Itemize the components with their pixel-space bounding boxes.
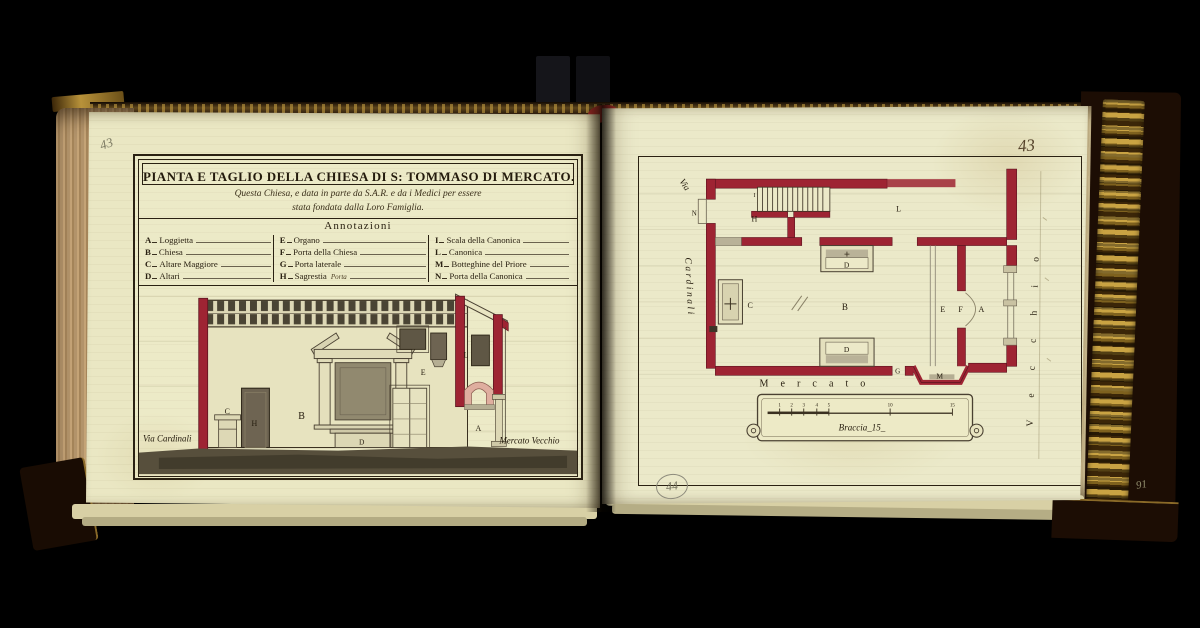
street-label-cardinali: Cardinali xyxy=(682,257,696,317)
legend-label: Loggietta xyxy=(159,235,193,245)
legend-key: A xyxy=(145,235,151,245)
plan-svg: 1 2 3 4 5 10 15 Braccia_15_ N I H L C B … xyxy=(639,157,1081,485)
legend-key: B xyxy=(145,247,151,257)
legend-item: MBotteghine del Priore xyxy=(435,259,571,270)
legend-column-3: IScala della Canonica LCanonica MBottegh… xyxy=(428,235,571,282)
edge-pencil-number: 91 xyxy=(1135,478,1148,492)
book-cover-right xyxy=(1075,91,1181,536)
legend-item: ALoggietta xyxy=(145,235,273,246)
margin-marks xyxy=(1043,217,1051,361)
legend-item: LCanonica xyxy=(435,247,571,258)
book-gutter xyxy=(586,104,616,512)
section-label-d: D xyxy=(359,437,365,446)
legend-label: Chiesa xyxy=(159,247,183,257)
cover-bottom-right-edge xyxy=(1051,498,1178,542)
left-pencil-folio-number: 43 xyxy=(98,134,115,153)
plan-label-l: L xyxy=(896,204,901,213)
legend-label: Altare Maggiore xyxy=(159,259,217,269)
legend-key: L xyxy=(435,247,441,257)
scale-tick: 15 xyxy=(950,404,956,409)
subtitle-line-2: stata fondata dalla Loro Famiglia. xyxy=(139,202,577,216)
plate-subtitle: Questa Chiesa, e data in parte da S.A.R.… xyxy=(139,185,577,219)
subtitle-line-1: Questa Chiesa, e data in parte da S.A.R.… xyxy=(139,188,577,202)
legend: Annotazioni ALoggietta BChiesa CAltare M… xyxy=(139,219,577,286)
plan-label-e: E xyxy=(940,305,945,314)
plan-label-d-upper: D xyxy=(844,261,850,270)
scale-cartouche: 1 2 3 4 5 10 15 Braccia_15_ xyxy=(747,394,983,440)
section-label-l: L xyxy=(464,350,469,359)
legend-item: NPorta della Canonica xyxy=(435,271,571,282)
legend-note: Porta xyxy=(331,273,347,281)
legend-label: Organo xyxy=(294,235,320,245)
legend-label: Canonica xyxy=(449,247,482,257)
legend-label: Scala della Canonica xyxy=(446,235,520,245)
legend-key: N xyxy=(435,271,441,281)
legend-heading: Annotazioni xyxy=(145,220,571,235)
street-label-mercato-vecchio: Mercato Vecchio xyxy=(498,435,560,445)
section-organ-e xyxy=(431,333,447,367)
plan-label-h: H xyxy=(752,214,758,223)
legend-label: Porta laterale xyxy=(295,259,342,269)
section-label-c: C xyxy=(225,407,230,416)
plan-label-n: N xyxy=(692,209,697,217)
street-label-via-cardinali: Via Cardinali xyxy=(143,433,192,443)
left-page: 43 PIANTA E TAGLIO DELLA CHIESA DI S: TO… xyxy=(86,112,600,508)
legend-column-2: EOrgano FPorta della Chiesa GPorta later… xyxy=(273,235,428,282)
legend-key: M xyxy=(435,259,443,269)
scale-tick: 10 xyxy=(888,404,894,409)
legend-key: I xyxy=(435,235,438,245)
legend-label: Botteghine del Priore xyxy=(451,259,526,269)
plan-hatch-marks xyxy=(792,296,808,311)
legend-item: EOrgano xyxy=(280,235,428,246)
plan-door-n xyxy=(698,199,706,223)
legend-key: D xyxy=(145,271,151,281)
legend-key: H xyxy=(280,271,287,281)
plan-label-m: M xyxy=(936,371,943,380)
plan-stairs xyxy=(758,187,830,211)
right-page: 43 xyxy=(602,106,1088,504)
legend-item: DAltari xyxy=(145,271,273,282)
legend-item: GPorta laterale xyxy=(280,259,428,270)
street-label-mercato: Mercato xyxy=(760,378,878,389)
section-drawing: C H B D E L A Via Cardinali Mercato Vecc… xyxy=(139,286,577,476)
section-label-a: A xyxy=(475,424,481,433)
plate-title: PIANTA E TAGLIO DELLA CHIESA DI S: TOMMA… xyxy=(142,163,574,185)
right-ink-page-number: 43 xyxy=(1017,135,1036,156)
plan-label-a: A xyxy=(979,305,985,314)
legend-item: BChiesa xyxy=(145,247,273,258)
legend-key: C xyxy=(145,259,151,269)
section-label-e: E xyxy=(421,368,426,377)
section-altar-c xyxy=(215,415,241,448)
legend-key: F xyxy=(280,247,285,257)
legend-label: Porta della Chiesa xyxy=(293,247,357,257)
plan-colonnade xyxy=(1004,266,1017,345)
plan-label-g: G xyxy=(895,367,900,375)
section-label-b: B xyxy=(298,411,305,422)
legend-key: G xyxy=(280,259,287,269)
plan-pencil-walls xyxy=(930,246,935,367)
section-svg: C H B D E L A Via Cardinali Mercato Vecc… xyxy=(139,286,577,476)
plan-sill xyxy=(715,237,741,245)
section-label-h: H xyxy=(251,419,257,428)
plan-door-f-swing xyxy=(965,293,975,326)
scale-label: Braccia_15_ xyxy=(839,423,886,433)
legend-item: FPorta della Chiesa xyxy=(280,247,428,258)
plate-frame-right: 1 2 3 4 5 10 15 Braccia_15_ N I H L C B … xyxy=(638,156,1082,486)
legend-item: IScala della Canonica xyxy=(435,235,571,246)
section-window xyxy=(397,326,429,353)
section-cut-wall-left xyxy=(199,298,208,449)
legend-label: Porta della Canonica xyxy=(449,271,522,281)
stamp-value: 44 xyxy=(665,478,679,495)
legend-column-1: ALoggietta BChiesa CAltare Maggiore DAlt… xyxy=(145,235,273,282)
plan-label-f: F xyxy=(958,305,963,314)
legend-label: Altari xyxy=(159,271,180,281)
street-label-via: Via xyxy=(677,177,692,193)
section-side-door xyxy=(390,385,430,447)
plan-label-i: I xyxy=(754,193,756,199)
plan-label-d-lower: D xyxy=(844,345,850,354)
legend-item: CAltare Maggiore xyxy=(145,259,273,270)
left-bottom-sheet-edges-2 xyxy=(82,517,587,526)
cover-gold-tooling xyxy=(1085,99,1145,524)
legend-item: HSagrestiaPorta xyxy=(280,271,428,282)
plan-label-b: B xyxy=(842,302,848,312)
section-door-h xyxy=(242,388,270,447)
legend-key: E xyxy=(280,235,286,245)
plate-frame-left: PIANTA E TAGLIO DELLA CHIESA DI S: TOMMA… xyxy=(133,154,583,480)
plan-label-c: C xyxy=(747,301,752,310)
legend-label: Sagrestia xyxy=(295,271,327,281)
